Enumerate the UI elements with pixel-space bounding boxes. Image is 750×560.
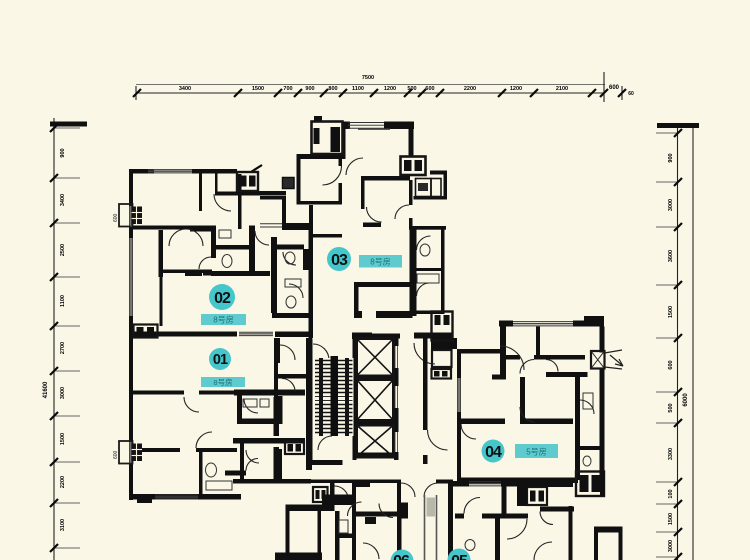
svg-text:600: 600	[425, 86, 434, 92]
svg-text:500: 500	[407, 86, 416, 92]
svg-text:41600: 41600	[43, 381, 49, 398]
svg-text:3400: 3400	[179, 86, 191, 92]
svg-text:1500: 1500	[668, 513, 674, 525]
svg-text:800: 800	[328, 86, 337, 92]
svg-text:600: 600	[668, 360, 674, 369]
svg-text:2500: 2500	[60, 244, 66, 256]
svg-text:1100: 1100	[352, 86, 364, 92]
svg-text:1500: 1500	[60, 433, 66, 445]
svg-text:1200: 1200	[510, 86, 522, 92]
svg-text:2700: 2700	[60, 342, 66, 354]
svg-text:1200: 1200	[384, 86, 396, 92]
svg-text:5号房: 5号房	[526, 447, 546, 457]
svg-text:06: 06	[393, 553, 410, 560]
svg-text:2100: 2100	[556, 86, 568, 92]
svg-text:3000: 3000	[668, 199, 674, 211]
svg-text:1100: 1100	[60, 295, 66, 307]
svg-text:600: 600	[113, 213, 119, 222]
svg-text:7500: 7500	[362, 75, 374, 81]
svg-text:1500: 1500	[668, 306, 674, 318]
svg-text:3300: 3300	[668, 448, 674, 460]
svg-text:8号房: 8号房	[370, 257, 390, 267]
svg-text:60: 60	[628, 91, 634, 97]
svg-text:3400: 3400	[60, 194, 66, 206]
svg-text:900: 900	[668, 153, 674, 162]
svg-text:900: 900	[60, 148, 66, 157]
svg-text:500: 500	[668, 403, 674, 412]
svg-text:05: 05	[451, 553, 468, 560]
svg-text:8号房: 8号房	[213, 377, 232, 387]
svg-text:1500: 1500	[252, 86, 264, 92]
svg-text:6000: 6000	[683, 393, 689, 407]
svg-text:03: 03	[331, 252, 348, 269]
svg-text:2200: 2200	[60, 476, 66, 488]
svg-text:3600: 3600	[668, 250, 674, 262]
svg-text:01: 01	[213, 352, 228, 368]
svg-text:3000: 3000	[668, 540, 674, 552]
svg-text:700: 700	[283, 86, 292, 92]
svg-text:100: 100	[668, 489, 674, 498]
svg-text:02: 02	[214, 290, 231, 307]
svg-text:2200: 2200	[464, 86, 476, 92]
svg-text:600: 600	[609, 85, 620, 91]
svg-text:3100: 3100	[60, 519, 66, 531]
svg-text:04: 04	[485, 444, 502, 461]
svg-text:8号房: 8号房	[213, 315, 233, 325]
svg-text:600: 600	[113, 450, 119, 459]
svg-text:3000: 3000	[60, 387, 66, 399]
svg-text:900: 900	[305, 86, 314, 92]
